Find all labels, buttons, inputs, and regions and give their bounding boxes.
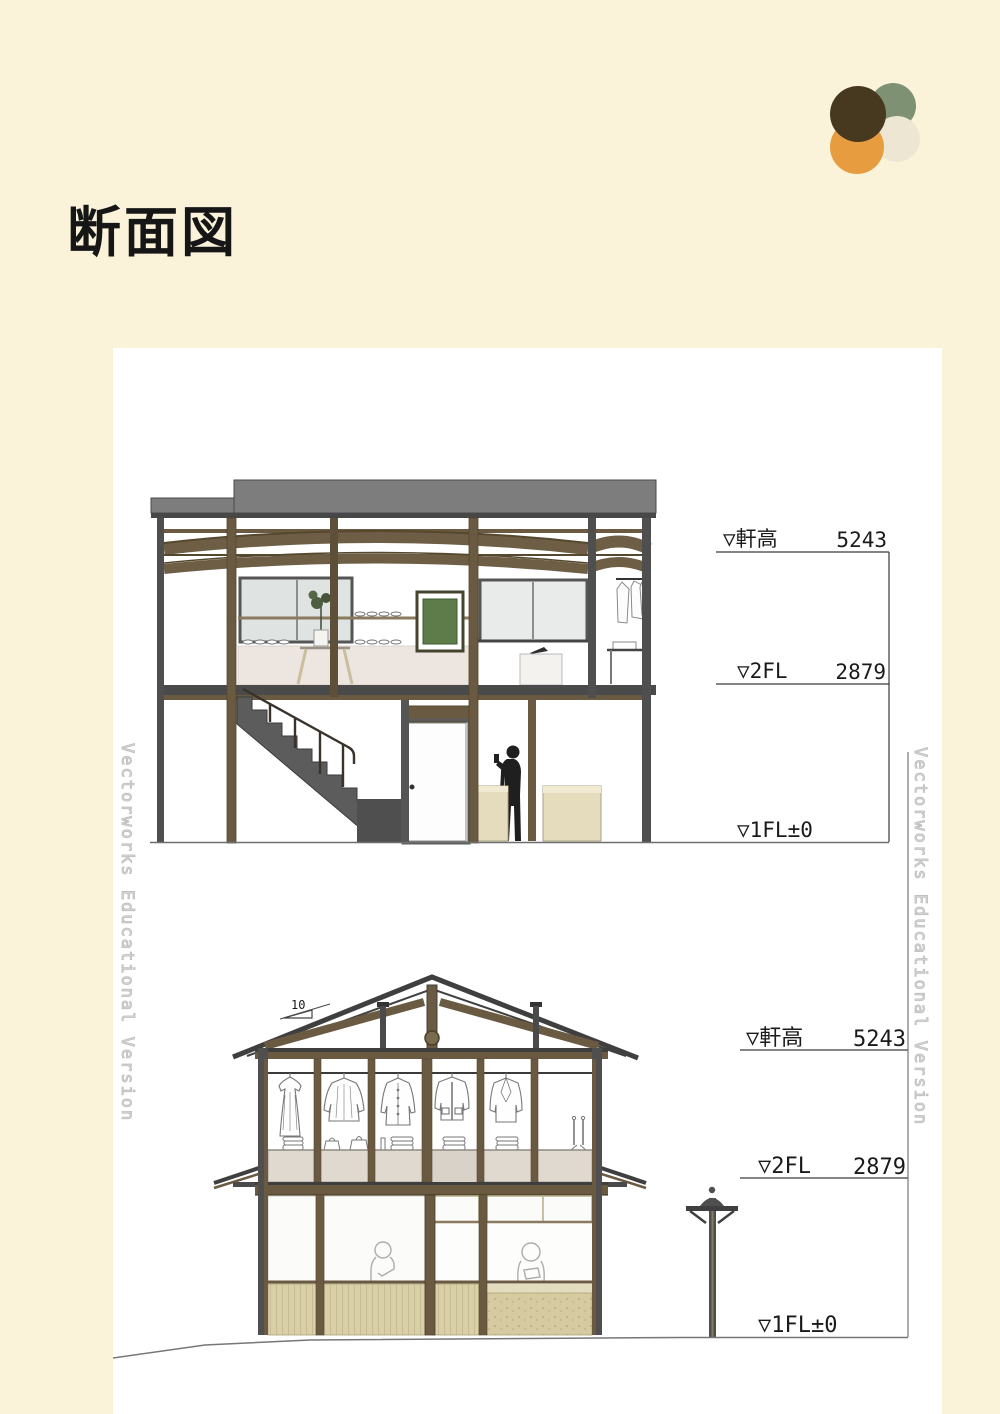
- lower-ground-line: [113, 1338, 908, 1359]
- street-lamp: [686, 1187, 738, 1337]
- door-knob: [410, 785, 415, 790]
- watermark-right: Vectorworks Educational Version: [910, 747, 930, 1126]
- logo-circle-brown: [830, 86, 886, 142]
- brand-logo: [815, 70, 935, 185]
- display-pedestal: [520, 647, 562, 685]
- roof-truss: [377, 985, 542, 1049]
- cabinet-right: [543, 786, 601, 841]
- wall-bay-3: [433, 1222, 479, 1282]
- logo-circles-icon: [815, 70, 935, 185]
- upper-section-drawing: ▽軒高 5243 ▽2FL 2879 ▽1FL±0: [150, 480, 889, 843]
- upper-wood-beams: [164, 531, 649, 569]
- shoji-window-1: [268, 1196, 316, 1282]
- lower-dim-1fl-label: ▽1FL±0: [758, 1313, 837, 1338]
- lower-dim-eave-value: 5243: [853, 1027, 906, 1052]
- wainscot-slats-mid: [433, 1284, 479, 1335]
- slope-value: 10: [291, 998, 305, 1012]
- page-title: 断面図: [67, 188, 238, 267]
- lower-dim-2fl-label: ▽2FL: [758, 1154, 811, 1179]
- stair-landing-block: [357, 799, 403, 843]
- transom-window-3: [543, 1196, 592, 1222]
- watermark-left: Vectorworks Educational Version: [117, 743, 137, 1122]
- door: [403, 706, 470, 843]
- truss-drum-joint: [425, 1031, 439, 1045]
- staircase: [237, 697, 360, 828]
- top-plate: [255, 1048, 608, 1052]
- shoji-window-2: [324, 1196, 425, 1282]
- wainscot-slats-left: [268, 1284, 425, 1335]
- transom-window-1: [433, 1196, 479, 1222]
- page: 断面図: [0, 0, 1000, 1414]
- upper-dim-eave-label: ▽軒高: [723, 527, 778, 551]
- upper-dim-1fl-label: ▽1FL±0: [737, 818, 813, 842]
- side-table: [607, 642, 648, 684]
- lower-2f-display: [268, 1059, 592, 1182]
- upper-dim-2fl-value: 2879: [835, 660, 886, 684]
- roof-slope-indicator: 10: [280, 998, 330, 1019]
- framed-artwork: [417, 592, 463, 651]
- section-drawings: ▽軒高 5243 ▽2FL 2879 ▽1FL±0 10: [113, 348, 942, 1414]
- upper-dim-2fl-label: ▽2FL: [737, 659, 788, 683]
- transom-window-2: [487, 1196, 543, 1222]
- upper-dimensions: ▽軒高 5243 ▽2FL 2879 ▽1FL±0: [716, 527, 889, 842]
- cabinet-left: [477, 786, 508, 841]
- upper-dim-eave-value: 5243: [836, 528, 887, 552]
- upper-flat-roof: [151, 480, 656, 518]
- lower-dim-eave-label: ▽軒高: [746, 1026, 803, 1051]
- lower-dim-2fl-value: 2879: [853, 1155, 906, 1180]
- upper-1f-interior: [237, 689, 601, 843]
- counter-top-band: [487, 1284, 592, 1293]
- top-plate-beam: [255, 1052, 608, 1059]
- drawing-sheet: ▽軒高 5243 ▽2FL 2879 ▽1FL±0 10: [113, 348, 942, 1414]
- counter-front-speckled: [487, 1293, 592, 1335]
